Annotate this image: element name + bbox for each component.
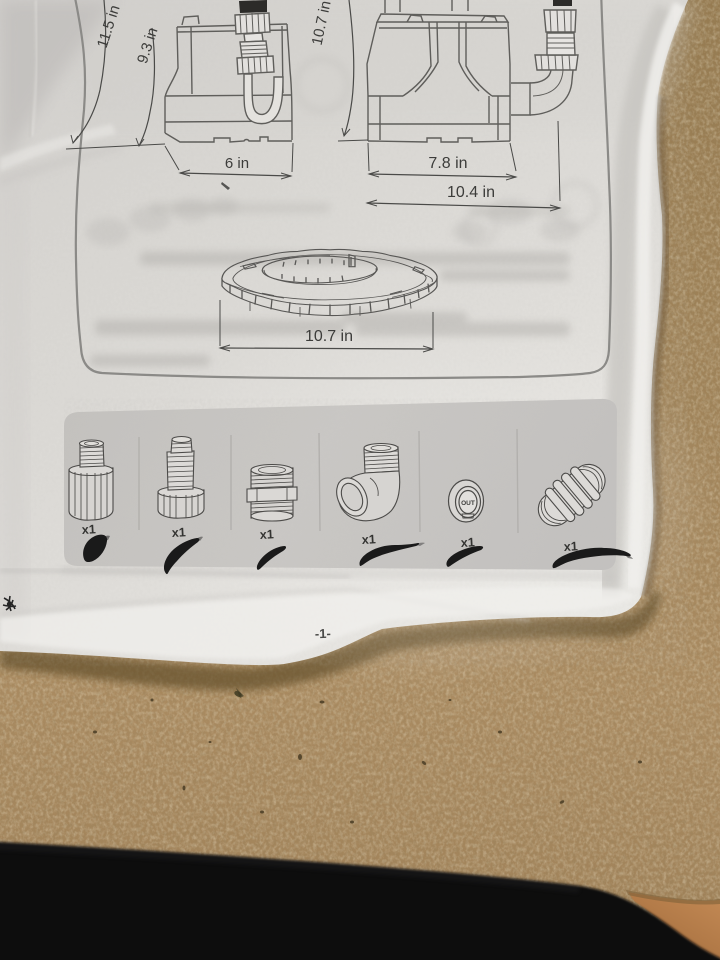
svg-text:x1: x1 (259, 527, 274, 542)
svg-text:x1: x1 (361, 532, 376, 547)
svg-text:6 in: 6 in (225, 155, 249, 172)
svg-text:10.7 in: 10.7 in (305, 328, 353, 345)
svg-text:x1: x1 (81, 522, 96, 537)
svg-text:OUT: OUT (461, 500, 475, 507)
svg-text:-1-: -1- (315, 626, 331, 642)
svg-text:10.4 in: 10.4 in (447, 184, 495, 201)
svg-text:7.8 in: 7.8 in (428, 155, 467, 172)
svg-text:x1: x1 (171, 525, 186, 540)
